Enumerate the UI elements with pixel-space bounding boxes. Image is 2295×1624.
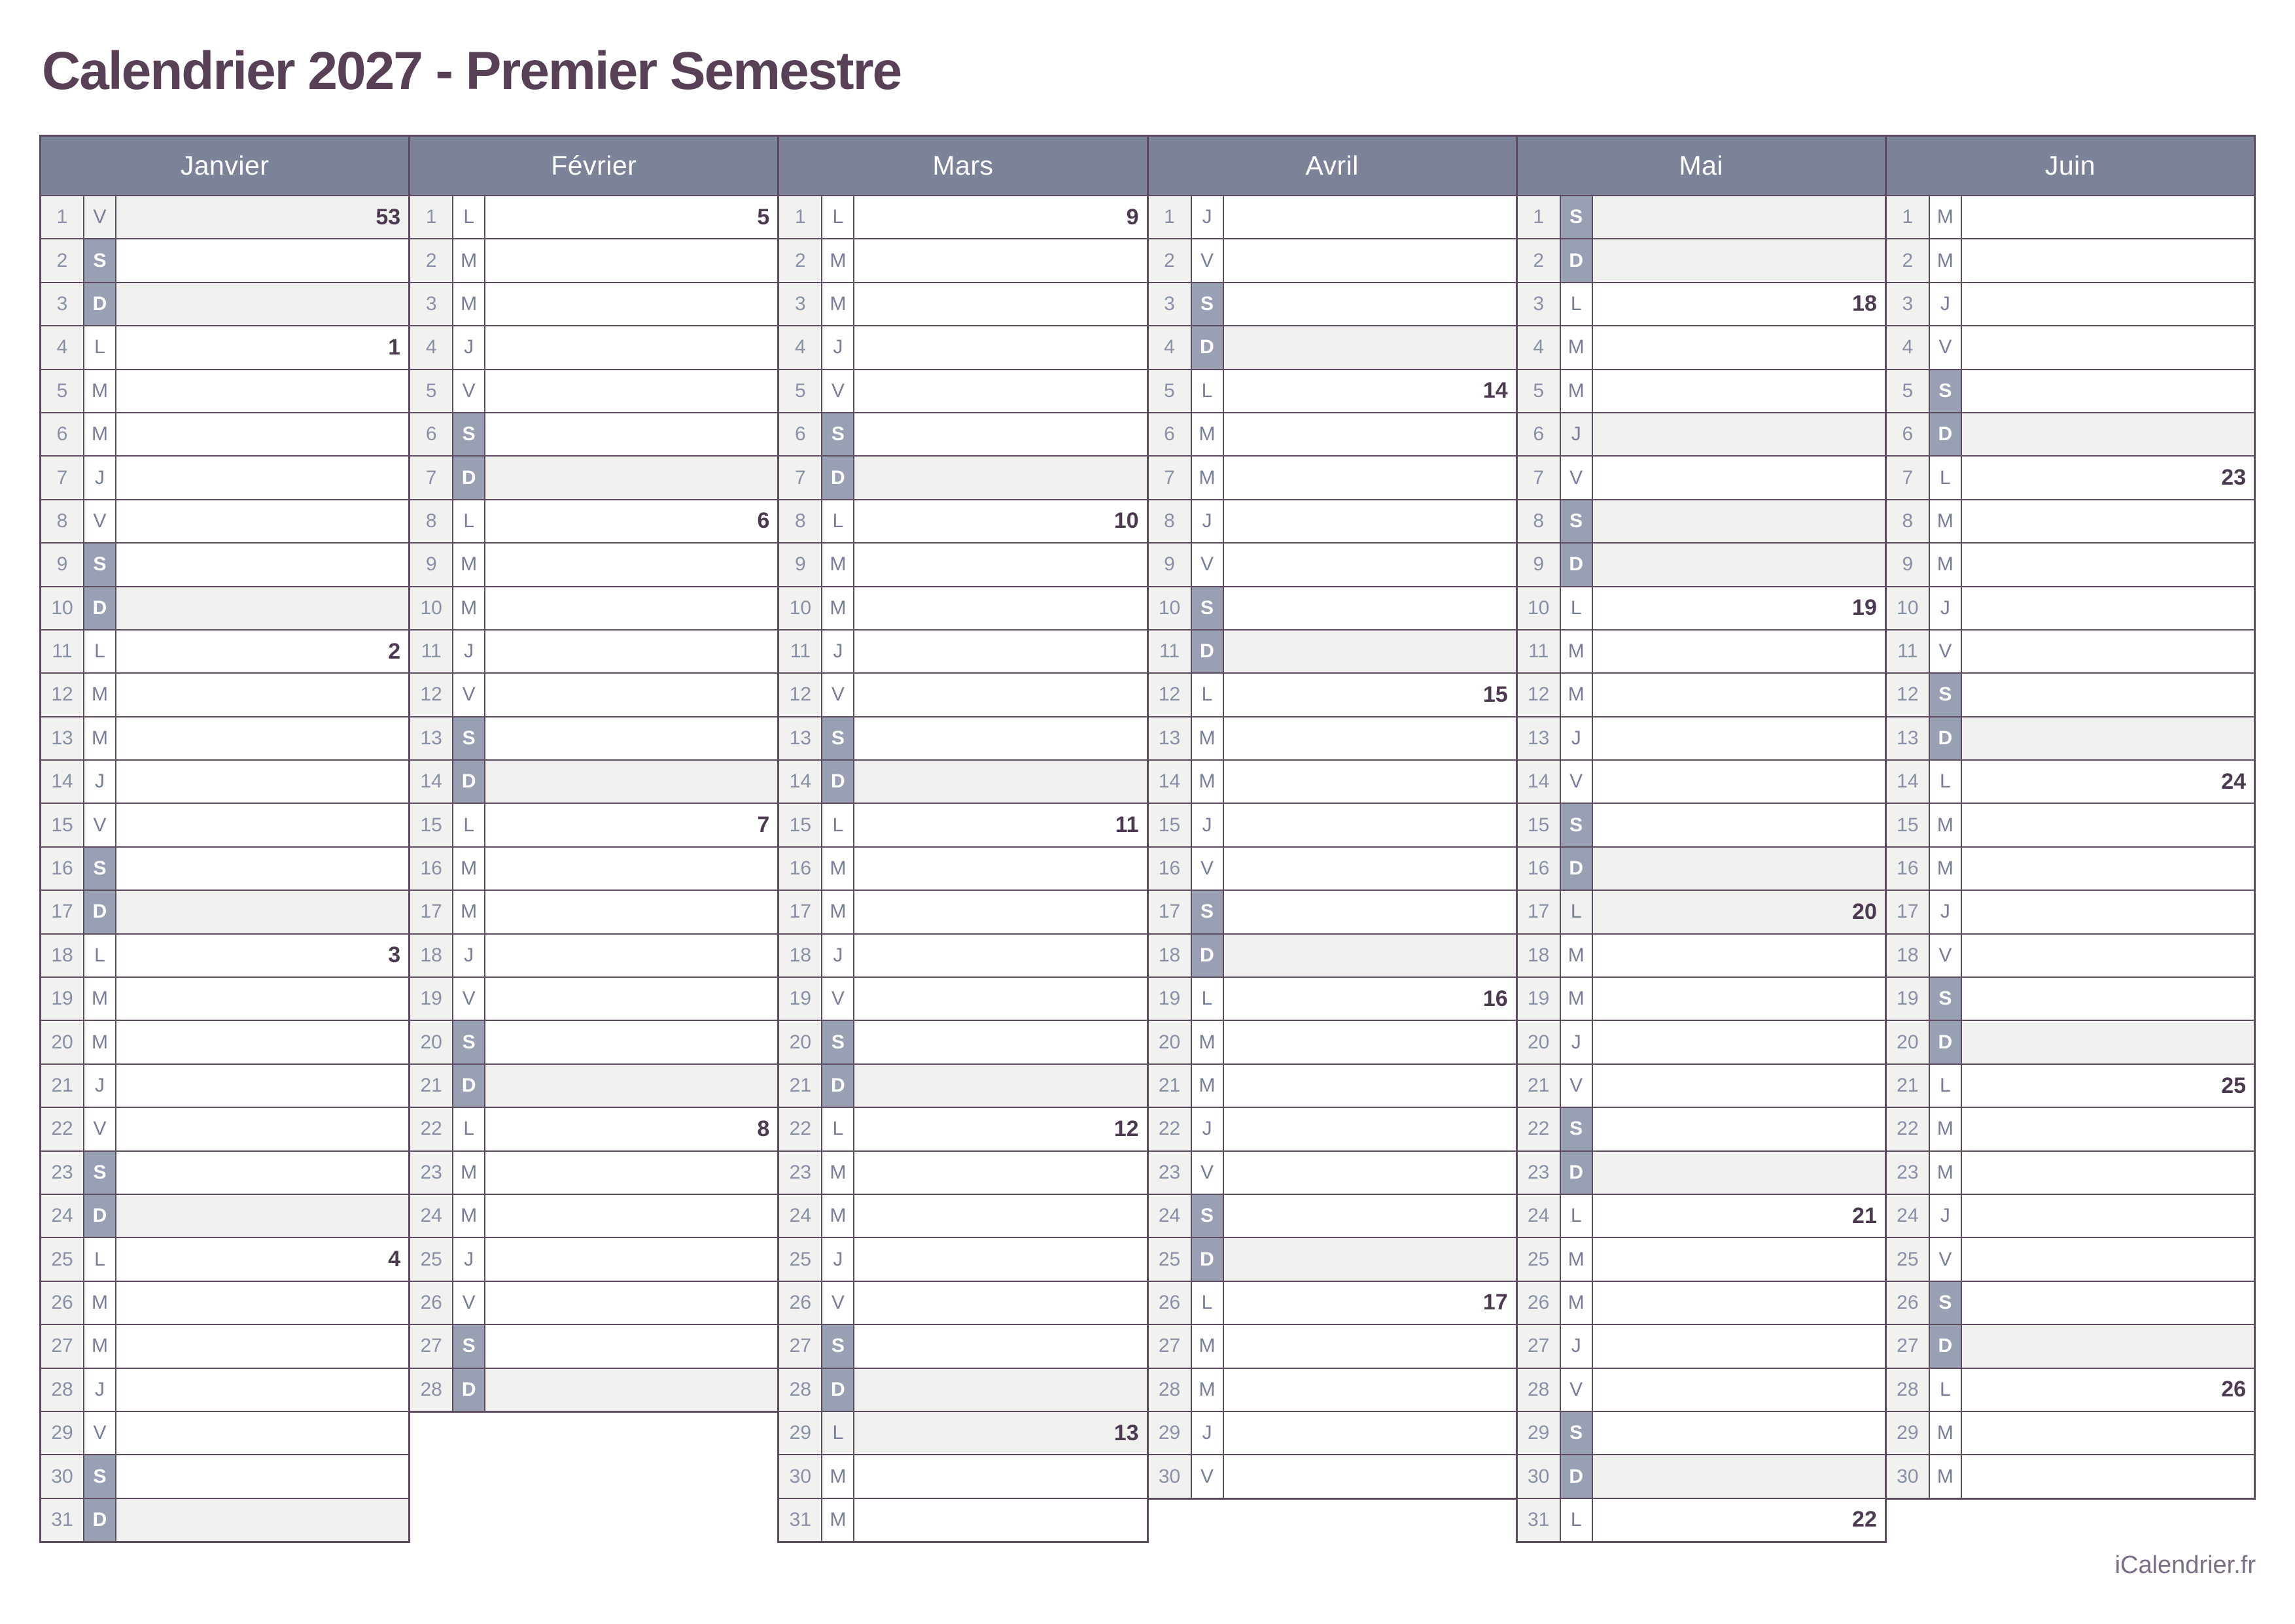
day-row: 9M	[779, 542, 1146, 585]
day-row: 16M	[410, 846, 777, 890]
day-row: 7D	[779, 455, 1146, 498]
day-letter-cell: V	[84, 1108, 116, 1150]
day-content-cell	[1224, 1021, 1516, 1063]
day-letter-cell: J	[84, 761, 116, 803]
day-letter-cell: D	[1192, 935, 1224, 976]
day-number-cell: 20	[410, 1021, 453, 1063]
day-number-cell: 15	[1518, 804, 1561, 846]
day-content-cell	[116, 1455, 408, 1497]
day-row: 21M	[1149, 1063, 1516, 1107]
day-letter-cell: J	[453, 1238, 485, 1280]
day-row: 19L16	[1149, 976, 1516, 1020]
day-content-cell	[1962, 196, 2254, 238]
day-row: 2S	[41, 238, 408, 281]
day-letter-cell: V	[1561, 761, 1593, 803]
day-letter-cell: L	[84, 935, 116, 976]
day-number-cell: 27	[41, 1325, 84, 1367]
day-row: 25L4	[41, 1237, 408, 1280]
day-content-cell	[485, 1195, 777, 1237]
day-content-cell	[854, 978, 1146, 1020]
day-content-cell	[116, 761, 408, 803]
day-row: 22S	[1518, 1107, 1885, 1150]
week-number: 10	[1114, 508, 1139, 534]
day-content-cell	[1962, 891, 2254, 933]
day-content-cell	[1224, 587, 1516, 629]
day-content-cell	[1224, 761, 1516, 803]
week-number: 24	[2221, 769, 2246, 795]
week-number: 23	[2221, 465, 2246, 491]
day-letter-cell: S	[453, 413, 485, 455]
day-letter-cell: V	[453, 674, 485, 716]
day-letter-cell: L	[453, 500, 485, 542]
day-row: 12M	[41, 672, 408, 716]
day-content-cell	[485, 1238, 777, 1280]
day-content-cell	[116, 239, 408, 281]
day-number-cell: 30	[41, 1455, 84, 1497]
day-content-cell	[1593, 370, 1885, 412]
day-content-cell	[116, 1369, 408, 1411]
day-content-cell: 1	[116, 326, 408, 368]
day-number-cell: 1	[779, 196, 822, 238]
day-row: 11D	[1149, 629, 1516, 672]
day-letter-cell: J	[1561, 717, 1593, 759]
day-row: 9D	[1518, 542, 1885, 585]
day-number-cell: 24	[1149, 1195, 1192, 1237]
day-content-cell	[116, 1412, 408, 1454]
day-letter-cell: M	[822, 239, 854, 281]
day-letter-cell: M	[822, 283, 854, 325]
day-letter-cell: M	[1930, 1108, 1962, 1150]
day-row: 11M	[1518, 629, 1885, 672]
week-number: 5	[757, 205, 769, 230]
day-content-cell	[485, 935, 777, 976]
day-letter-cell: D	[1561, 1152, 1593, 1194]
month-janvier: Janvier1V532S3D4L15M6M7J8V9S10D11L212M13…	[39, 135, 410, 1543]
day-content-cell	[116, 1108, 408, 1150]
day-content-cell	[1593, 631, 1885, 672]
day-letter-cell: L	[822, 804, 854, 846]
day-content-cell	[116, 978, 408, 1020]
day-letter-cell: D	[1561, 1455, 1593, 1497]
day-letter-cell: M	[1930, 196, 1962, 238]
day-row: 4L1	[41, 325, 408, 368]
day-number-cell: 16	[779, 848, 822, 890]
day-number-cell: 7	[1149, 457, 1192, 498]
day-letter-cell: M	[1930, 1455, 1962, 1497]
day-row: 23D	[1518, 1150, 1885, 1194]
day-content-cell: 2	[116, 631, 408, 672]
day-number-cell: 5	[779, 370, 822, 412]
day-number-cell: 10	[1518, 587, 1561, 629]
day-row: 9M	[1887, 542, 2254, 585]
day-row: 23M	[1887, 1150, 2254, 1194]
day-content-cell	[116, 848, 408, 890]
day-content-cell	[1224, 935, 1516, 976]
day-row: 9M	[410, 542, 777, 585]
day-letter-cell: M	[1192, 1021, 1224, 1063]
day-content-cell	[1224, 891, 1516, 933]
day-number-cell: 17	[1149, 891, 1192, 933]
day-number-cell: 7	[1887, 457, 1930, 498]
day-number-cell: 7	[410, 457, 453, 498]
day-content-cell	[854, 544, 1146, 585]
day-number-cell: 14	[1887, 761, 1930, 803]
day-row: 25J	[410, 1237, 777, 1280]
day-number-cell: 9	[1149, 544, 1192, 585]
day-letter-cell: D	[822, 457, 854, 498]
month-juin: Juin1M2M3J4V5S6D7L238M9M10J11V12S13D14L2…	[1885, 135, 2256, 1500]
day-number-cell: 22	[1518, 1108, 1561, 1150]
day-letter-cell: L	[1561, 587, 1593, 629]
day-content-cell	[1593, 848, 1885, 890]
day-letter-cell: S	[822, 1021, 854, 1063]
day-number-cell: 11	[410, 631, 453, 672]
day-content-cell	[1962, 1325, 2254, 1367]
day-row: 16V	[1149, 846, 1516, 890]
day-content-cell	[1962, 283, 2254, 325]
day-number-cell: 12	[779, 674, 822, 716]
day-row: 21V	[1518, 1063, 1885, 1107]
day-content-cell	[1962, 1238, 2254, 1280]
day-row: 8L10	[779, 499, 1146, 542]
day-content-cell: 13	[854, 1412, 1146, 1454]
day-number-cell: 25	[1149, 1238, 1192, 1280]
day-row: 18J	[779, 933, 1146, 976]
day-letter-cell: J	[84, 1369, 116, 1411]
day-number-cell: 7	[1518, 457, 1561, 498]
day-row: 1J	[1149, 195, 1516, 238]
day-number-cell: 13	[1149, 717, 1192, 759]
day-number-cell: 9	[41, 544, 84, 585]
week-number: 16	[1483, 986, 1508, 1012]
day-letter-cell: S	[1930, 674, 1962, 716]
day-letter-cell: M	[1192, 1325, 1224, 1367]
day-row: 18M	[1518, 933, 1885, 976]
day-number-cell: 14	[41, 761, 84, 803]
week-number: 26	[2221, 1377, 2246, 1402]
day-number-cell: 6	[1149, 413, 1192, 455]
day-letter-cell: J	[1561, 413, 1593, 455]
day-row: 16M	[1887, 846, 2254, 890]
day-content-cell	[1962, 804, 2254, 846]
day-number-cell: 28	[1518, 1369, 1561, 1411]
day-letter-cell: L	[1561, 283, 1593, 325]
month-mai: Mai1S2D3L184M5M6J7V8S9D10L1911M12M13J14V…	[1516, 135, 1887, 1543]
day-content-cell	[485, 674, 777, 716]
day-row: 24D	[41, 1194, 408, 1237]
day-row: 15L7	[410, 803, 777, 846]
day-number-cell: 22	[41, 1108, 84, 1150]
day-row: 14L24	[1887, 759, 2254, 803]
day-row: 20S	[410, 1020, 777, 1063]
day-number-cell: 21	[410, 1065, 453, 1107]
month-mars: Mars1L92M3M4J5V6S7D8L109M10M11J12V13S14D…	[777, 135, 1148, 1543]
day-letter-cell: J	[453, 935, 485, 976]
day-number-cell: 8	[1887, 500, 1930, 542]
day-row: 28J	[41, 1368, 408, 1411]
day-row: 22J	[1149, 1107, 1516, 1150]
day-letter-cell: J	[1192, 804, 1224, 846]
day-content-cell	[1962, 326, 2254, 368]
day-number-cell: 31	[41, 1499, 84, 1541]
day-letter-cell: M	[1192, 413, 1224, 455]
day-letter-cell: L	[1561, 891, 1593, 933]
day-content-cell	[116, 283, 408, 325]
day-content-cell	[854, 1325, 1146, 1367]
day-letter-cell: J	[1192, 500, 1224, 542]
day-row: 12V	[779, 672, 1146, 716]
day-row: 6S	[410, 412, 777, 455]
day-content-cell	[1962, 674, 2254, 716]
day-letter-cell: S	[1192, 891, 1224, 933]
day-number-cell: 6	[41, 413, 84, 455]
day-letter-cell: M	[1930, 544, 1962, 585]
day-letter-cell: M	[822, 587, 854, 629]
day-number-cell: 16	[1887, 848, 1930, 890]
day-row: 16M	[779, 846, 1146, 890]
day-letter-cell: J	[453, 326, 485, 368]
day-number-cell: 1	[1887, 196, 1930, 238]
day-number-cell: 29	[779, 1412, 822, 1454]
day-letter-cell: D	[453, 761, 485, 803]
day-letter-cell: V	[1192, 544, 1224, 585]
day-number-cell: 13	[1518, 717, 1561, 759]
day-letter-cell: M	[453, 283, 485, 325]
day-row: 11V	[1887, 629, 2254, 672]
day-letter-cell: V	[1561, 1369, 1593, 1411]
day-number-cell: 6	[779, 413, 822, 455]
day-number-cell: 11	[1518, 631, 1561, 672]
day-letter-cell: S	[84, 848, 116, 890]
day-letter-cell: M	[84, 370, 116, 412]
day-content-cell	[854, 326, 1146, 368]
day-row: 29V	[41, 1411, 408, 1454]
day-letter-cell: D	[1561, 239, 1593, 281]
day-number-cell: 20	[41, 1021, 84, 1063]
day-number-cell: 5	[1518, 370, 1561, 412]
day-content-cell	[1962, 413, 2254, 455]
day-row: 10M	[779, 586, 1146, 629]
day-number-cell: 17	[41, 891, 84, 933]
day-number-cell: 15	[1149, 804, 1192, 846]
day-row: 30M	[1887, 1454, 2254, 1497]
day-row: 13M	[1149, 716, 1516, 759]
day-row: 17D	[41, 890, 408, 933]
day-number-cell: 29	[1149, 1412, 1192, 1454]
day-content-cell: 15	[1224, 674, 1516, 716]
day-content-cell	[854, 848, 1146, 890]
month-avril: Avril1J2V3S4D5L146M7M8J9V10S11D12L1513M1…	[1147, 135, 1518, 1500]
day-letter-cell: S	[453, 717, 485, 759]
day-row: 28M	[1149, 1368, 1516, 1411]
day-number-cell: 29	[1518, 1412, 1561, 1454]
day-number-cell: 28	[41, 1369, 84, 1411]
day-content-cell	[485, 413, 777, 455]
day-letter-cell: J	[1561, 1325, 1593, 1367]
day-number-cell: 9	[1887, 544, 1930, 585]
day-row: 28D	[779, 1368, 1146, 1411]
day-number-cell: 19	[410, 978, 453, 1020]
day-letter-cell: S	[84, 544, 116, 585]
day-letter-cell: M	[822, 1195, 854, 1237]
day-content-cell: 53	[116, 196, 408, 238]
month-header: Mars	[779, 137, 1146, 195]
day-letter-cell: L	[453, 196, 485, 238]
day-number-cell: 14	[410, 761, 453, 803]
day-content-cell	[116, 1152, 408, 1194]
day-content-cell	[116, 891, 408, 933]
day-letter-cell: V	[1930, 326, 1962, 368]
day-row: 15S	[1518, 803, 1885, 846]
day-number-cell: 27	[410, 1325, 453, 1367]
day-letter-cell: S	[1561, 500, 1593, 542]
day-letter-cell: D	[1192, 631, 1224, 672]
day-content-cell	[1962, 1021, 2254, 1063]
day-content-cell	[1593, 935, 1885, 976]
day-content-cell	[1224, 196, 1516, 238]
day-content-cell	[1224, 1369, 1516, 1411]
day-number-cell: 2	[410, 239, 453, 281]
day-content-cell	[854, 1499, 1146, 1541]
day-row: 17M	[410, 890, 777, 933]
day-content-cell	[1962, 935, 2254, 976]
day-letter-cell: V	[453, 978, 485, 1020]
day-row: 15V	[41, 803, 408, 846]
day-content-cell	[1593, 1238, 1885, 1280]
day-content-cell	[1962, 544, 2254, 585]
day-row: 25V	[1887, 1237, 2254, 1280]
week-number: 15	[1483, 682, 1508, 708]
day-letter-cell: J	[1930, 1195, 1962, 1237]
day-content-cell	[1224, 1412, 1516, 1454]
day-content-cell	[854, 935, 1146, 976]
day-letter-cell: D	[822, 1369, 854, 1411]
day-letter-cell: M	[84, 717, 116, 759]
day-number-cell: 19	[1149, 978, 1192, 1020]
day-letter-cell: L	[822, 1412, 854, 1454]
day-letter-cell: V	[1561, 1065, 1593, 1107]
day-letter-cell: L	[1930, 457, 1962, 498]
day-number-cell: 3	[1887, 283, 1930, 325]
week-number: 6	[757, 508, 769, 534]
day-row: 6J	[1518, 412, 1885, 455]
day-letter-cell: V	[84, 1412, 116, 1454]
day-number-cell: 3	[41, 283, 84, 325]
day-content-cell	[485, 239, 777, 281]
day-row: 25J	[779, 1237, 1146, 1280]
day-letter-cell: V	[822, 978, 854, 1020]
day-content-cell	[485, 761, 777, 803]
day-content-cell: 10	[854, 500, 1146, 542]
week-number: 19	[1852, 595, 1877, 621]
day-letter-cell: S	[822, 413, 854, 455]
day-number-cell: 23	[779, 1152, 822, 1194]
day-content-cell	[1593, 978, 1885, 1020]
day-row: 3D	[41, 282, 408, 325]
day-row: 8S	[1518, 499, 1885, 542]
day-content-cell: 25	[1962, 1065, 2254, 1107]
day-row: 26V	[410, 1281, 777, 1324]
day-row: 28D	[410, 1368, 777, 1411]
day-content-cell: 23	[1962, 457, 2254, 498]
day-content-cell	[1593, 500, 1885, 542]
day-letter-cell: V	[1930, 935, 1962, 976]
day-letter-cell: M	[84, 674, 116, 716]
day-letter-cell: V	[822, 674, 854, 716]
day-row: 29S	[1518, 1411, 1885, 1454]
day-content-cell	[854, 761, 1146, 803]
day-row: 27M	[1149, 1324, 1516, 1367]
day-number-cell: 21	[1518, 1065, 1561, 1107]
day-number-cell: 7	[779, 457, 822, 498]
day-row: 29J	[1149, 1411, 1516, 1454]
day-number-cell: 5	[41, 370, 84, 412]
day-content-cell	[1224, 1065, 1516, 1107]
day-number-cell: 6	[1518, 413, 1561, 455]
week-number: 1	[388, 335, 400, 360]
day-number-cell: 12	[1149, 674, 1192, 716]
day-letter-cell: M	[84, 1282, 116, 1324]
day-row: 15J	[1149, 803, 1516, 846]
day-number-cell: 23	[1518, 1152, 1561, 1194]
day-letter-cell: S	[1561, 196, 1593, 238]
day-number-cell: 18	[410, 935, 453, 976]
day-row: 29M	[1887, 1411, 2254, 1454]
day-number-cell: 8	[41, 500, 84, 542]
day-row: 8L6	[410, 499, 777, 542]
day-number-cell: 30	[1518, 1455, 1561, 1497]
day-row: 4D	[1149, 325, 1516, 368]
day-content-cell	[116, 587, 408, 629]
day-number-cell: 10	[41, 587, 84, 629]
day-row: 5M	[1518, 369, 1885, 412]
day-row: 28V	[1518, 1368, 1885, 1411]
day-row: 30S	[41, 1454, 408, 1497]
day-row: 1M	[1887, 195, 2254, 238]
day-number-cell: 21	[41, 1065, 84, 1107]
day-row: 10J	[1887, 586, 2254, 629]
day-number-cell: 20	[779, 1021, 822, 1063]
day-number-cell: 28	[1887, 1369, 1930, 1411]
day-number-cell: 10	[779, 587, 822, 629]
day-number-cell: 1	[410, 196, 453, 238]
day-content-cell	[485, 891, 777, 933]
day-row: 18L3	[41, 933, 408, 976]
day-content-cell: 3	[116, 935, 408, 976]
day-row: 31L22	[1518, 1498, 1885, 1541]
day-row: 20J	[1518, 1020, 1885, 1063]
day-number-cell: 1	[41, 196, 84, 238]
day-row: 23V	[1149, 1150, 1516, 1194]
day-number-cell: 6	[410, 413, 453, 455]
day-content-cell	[116, 544, 408, 585]
day-content-cell: 20	[1593, 891, 1885, 933]
day-number-cell: 27	[1887, 1325, 1930, 1367]
day-letter-cell: S	[84, 239, 116, 281]
day-content-cell: 21	[1593, 1195, 1885, 1237]
day-letter-cell: S	[1561, 1108, 1593, 1150]
day-content-cell	[1962, 587, 2254, 629]
day-number-cell: 24	[41, 1195, 84, 1237]
day-content-cell	[1593, 1412, 1885, 1454]
day-number-cell: 16	[1518, 848, 1561, 890]
day-row: 31M	[779, 1498, 1146, 1541]
day-letter-cell: M	[1561, 326, 1593, 368]
day-letter-cell: D	[822, 761, 854, 803]
month-header: Avril	[1149, 137, 1516, 195]
day-letter-cell: L	[84, 326, 116, 368]
day-number-cell: 18	[41, 935, 84, 976]
